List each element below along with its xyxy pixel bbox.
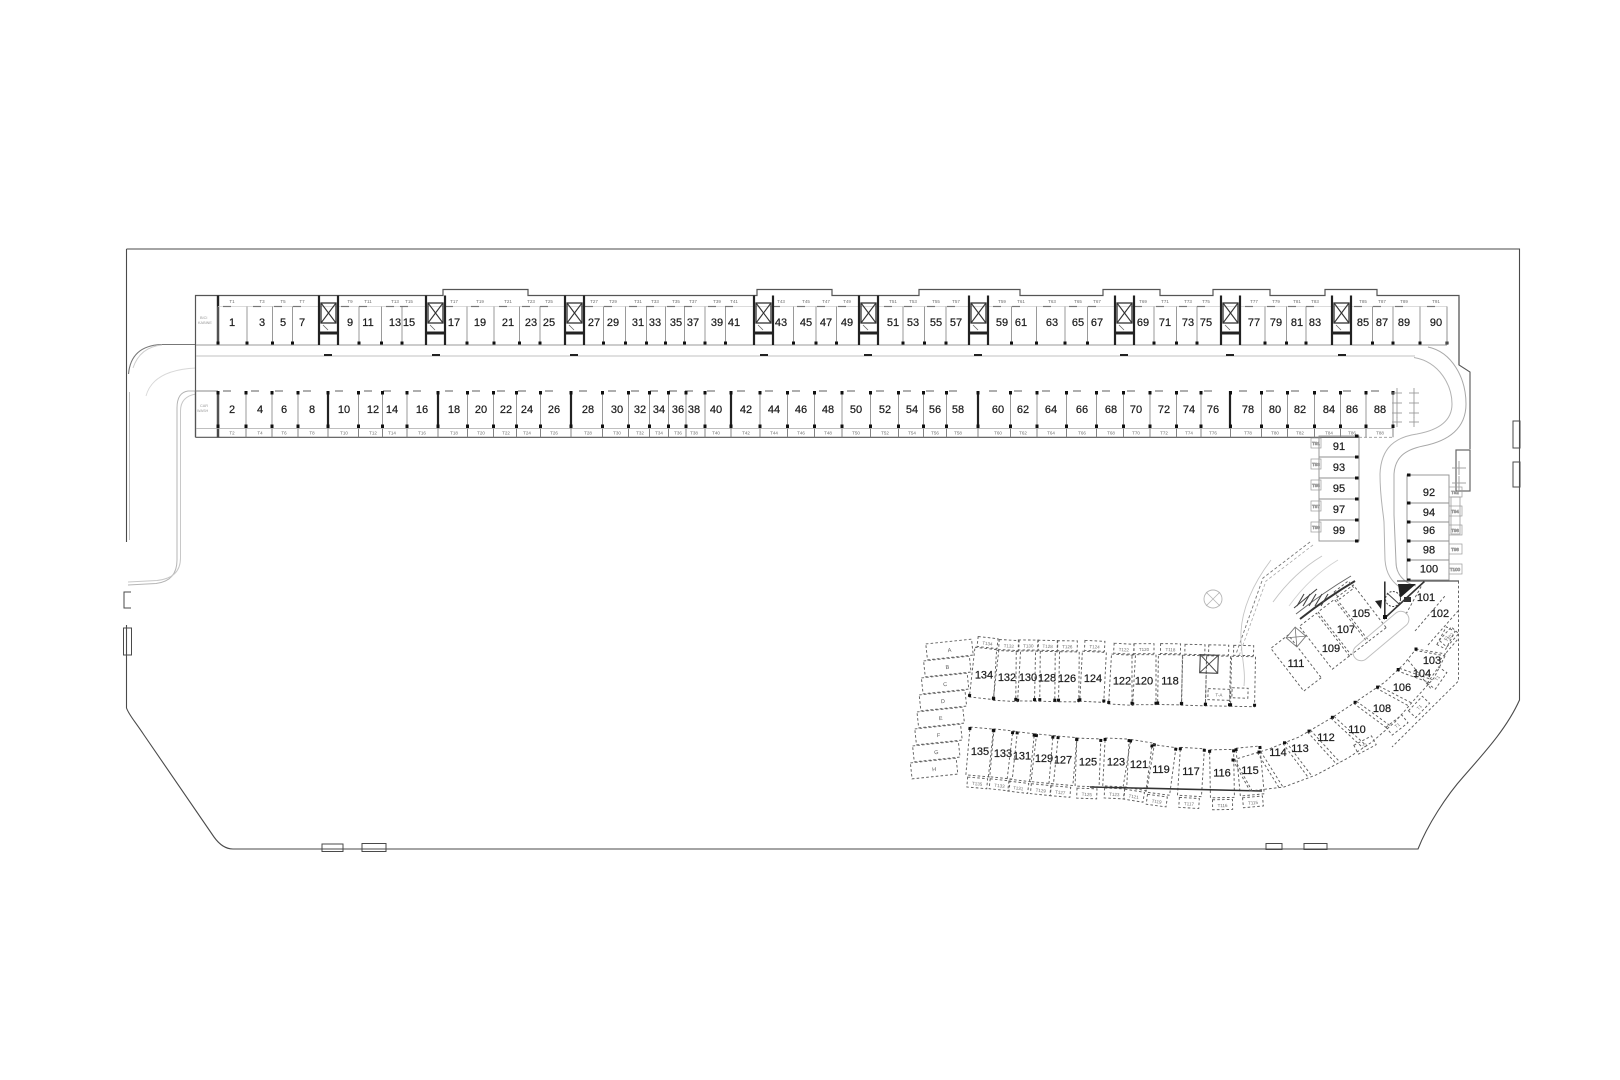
- svg-text:84: 84: [1323, 404, 1335, 416]
- svg-text:79: 79: [1270, 317, 1282, 329]
- svg-text:T47: T47: [822, 299, 830, 304]
- svg-text:85: 85: [1357, 317, 1369, 329]
- svg-text:83: 83: [1309, 317, 1321, 329]
- svg-text:T60: T60: [994, 431, 1002, 436]
- svg-text:131: 131: [1013, 751, 1031, 763]
- svg-text:38: 38: [688, 404, 700, 416]
- svg-text:T43: T43: [777, 299, 785, 304]
- svg-text:T123: T123: [1109, 792, 1120, 798]
- svg-text:9: 9: [347, 317, 353, 329]
- svg-text:T117: T117: [1184, 801, 1195, 807]
- svg-text:132: 132: [998, 672, 1016, 684]
- svg-text:101: 101: [1417, 592, 1435, 604]
- svg-text:34: 34: [653, 404, 665, 416]
- svg-text:68: 68: [1105, 404, 1117, 416]
- svg-text:58: 58: [952, 404, 964, 416]
- svg-text:23: 23: [525, 317, 537, 329]
- svg-text:15: 15: [403, 317, 415, 329]
- svg-text:T53: T53: [909, 299, 917, 304]
- svg-text:96: 96: [1423, 525, 1435, 537]
- svg-text:T33: T33: [651, 299, 659, 304]
- svg-text:126: 126: [1058, 673, 1076, 685]
- svg-text:T94: T94: [1451, 509, 1459, 514]
- svg-text:T70: T70: [1132, 431, 1140, 436]
- svg-text:T31: T31: [634, 299, 642, 304]
- svg-text:T64: T64: [1047, 431, 1055, 436]
- svg-text:94: 94: [1423, 507, 1435, 519]
- svg-text:T125: T125: [1082, 792, 1093, 797]
- svg-text:T76: T76: [1209, 431, 1217, 436]
- svg-text:78: 78: [1242, 404, 1254, 416]
- svg-text:124: 124: [1084, 673, 1102, 685]
- svg-text:T72: T72: [1160, 431, 1168, 436]
- svg-text:T61: T61: [1017, 299, 1025, 304]
- svg-text:51: 51: [887, 317, 899, 329]
- svg-text:118: 118: [1161, 676, 1179, 688]
- svg-text:45: 45: [800, 317, 812, 329]
- svg-text:T13: T13: [391, 299, 399, 304]
- svg-text:T78: T78: [1244, 431, 1252, 436]
- svg-text:T54: T54: [908, 431, 916, 436]
- svg-text:C: C: [943, 682, 948, 688]
- svg-text:T18: T18: [450, 431, 458, 436]
- svg-text:T93: T93: [1312, 462, 1320, 467]
- svg-text:87: 87: [1376, 317, 1388, 329]
- svg-text:T67: T67: [1093, 299, 1101, 304]
- svg-text:T48: T48: [824, 431, 832, 436]
- svg-text:31: 31: [632, 317, 644, 329]
- svg-text:22: 22: [500, 404, 512, 416]
- svg-text:60: 60: [992, 404, 1004, 416]
- svg-text:T79: T79: [1272, 299, 1280, 304]
- svg-text:128: 128: [1038, 672, 1056, 684]
- svg-text:T6: T6: [281, 431, 287, 436]
- svg-text:T96: T96: [1451, 528, 1459, 533]
- svg-text:T87: T87: [1378, 299, 1386, 304]
- svg-text:1: 1: [229, 317, 235, 329]
- svg-text:100: 100: [1420, 564, 1438, 576]
- svg-text:T3: T3: [259, 299, 265, 304]
- svg-text:T45: T45: [802, 299, 810, 304]
- svg-text:81: 81: [1291, 317, 1303, 329]
- svg-text:135: 135: [971, 746, 989, 758]
- svg-text:32: 32: [634, 404, 646, 416]
- svg-text:11: 11: [362, 317, 373, 329]
- svg-text:110: 110: [1348, 724, 1366, 736]
- svg-text:G: G: [934, 750, 939, 756]
- svg-text:62: 62: [1017, 404, 1029, 416]
- svg-text:75: 75: [1200, 317, 1212, 329]
- svg-text:T130: T130: [1023, 643, 1034, 648]
- svg-text:T32: T32: [636, 431, 644, 436]
- svg-text:T40: T40: [712, 431, 720, 436]
- svg-text:24: 24: [521, 404, 533, 416]
- svg-text:T68: T68: [1107, 431, 1115, 436]
- svg-text:T36: T36: [674, 431, 682, 436]
- svg-text:T27: T27: [590, 299, 598, 304]
- svg-text:80: 80: [1269, 404, 1281, 416]
- svg-text:T21: T21: [504, 299, 512, 304]
- svg-text:55: 55: [930, 317, 942, 329]
- svg-text:47: 47: [820, 317, 832, 329]
- svg-text:18: 18: [448, 404, 460, 416]
- svg-text:T52: T52: [881, 431, 889, 436]
- svg-text:T126: T126: [1062, 644, 1073, 649]
- svg-text:72: 72: [1158, 404, 1170, 416]
- svg-text:T42: T42: [742, 431, 750, 436]
- svg-text:26: 26: [548, 404, 560, 416]
- svg-text:T34: T34: [655, 431, 663, 436]
- svg-text:T65: T65: [1074, 299, 1082, 304]
- svg-text:T85: T85: [1359, 299, 1367, 304]
- svg-text:6: 6: [281, 404, 287, 416]
- svg-text:113: 113: [1291, 743, 1309, 755]
- svg-text:T118: T118: [1165, 647, 1175, 652]
- svg-text:109: 109: [1322, 643, 1340, 655]
- svg-text:53: 53: [907, 317, 919, 329]
- svg-text:T2: T2: [229, 431, 235, 436]
- svg-text:T25: T25: [545, 299, 553, 304]
- svg-text:T80: T80: [1271, 431, 1279, 436]
- svg-text:T92: T92: [1451, 490, 1459, 495]
- svg-text:95: 95: [1333, 483, 1345, 495]
- svg-text:T127: T127: [1055, 790, 1066, 796]
- svg-text:T9: T9: [347, 299, 353, 304]
- svg-text:127: 127: [1054, 755, 1072, 767]
- svg-text:T58: T58: [954, 431, 962, 436]
- svg-text:T7: T7: [299, 299, 305, 304]
- svg-text:WASH: WASH: [197, 409, 209, 413]
- svg-text:33: 33: [649, 317, 661, 329]
- svg-text:T1: T1: [229, 299, 235, 304]
- svg-text:104: 104: [1413, 668, 1431, 680]
- svg-text:105: 105: [1352, 608, 1370, 620]
- svg-text:107: 107: [1337, 624, 1355, 636]
- svg-text:48: 48: [822, 404, 834, 416]
- svg-text:106: 106: [1393, 682, 1411, 694]
- svg-text:103: 103: [1423, 655, 1441, 667]
- svg-text:27: 27: [588, 317, 600, 329]
- svg-text:T26: T26: [550, 431, 558, 436]
- svg-text:13: 13: [389, 317, 401, 329]
- svg-text:T132: T132: [1004, 643, 1015, 649]
- svg-text:T8: T8: [309, 431, 315, 436]
- svg-text:T20: T20: [477, 431, 485, 436]
- svg-text:122: 122: [1113, 676, 1131, 688]
- svg-text:14: 14: [386, 404, 398, 416]
- svg-text:20: 20: [475, 404, 487, 416]
- svg-text:70: 70: [1130, 404, 1142, 416]
- svg-text:T135: T135: [972, 781, 983, 787]
- svg-text:T89: T89: [1400, 299, 1408, 304]
- svg-text:19: 19: [474, 317, 486, 329]
- svg-text:61: 61: [1015, 317, 1027, 329]
- svg-text:T44: T44: [770, 431, 778, 436]
- svg-text:T124: T124: [1089, 644, 1100, 650]
- svg-text:37: 37: [687, 317, 699, 329]
- svg-text:54: 54: [906, 404, 918, 416]
- svg-text:T39: T39: [713, 299, 721, 304]
- svg-text:39: 39: [711, 317, 723, 329]
- svg-text:T55: T55: [932, 299, 940, 304]
- svg-text:89: 89: [1398, 317, 1410, 329]
- svg-text:43: 43: [775, 317, 787, 329]
- svg-text:92: 92: [1423, 487, 1435, 499]
- svg-text:T100: T100: [1450, 567, 1461, 572]
- svg-text:93: 93: [1333, 462, 1345, 474]
- svg-text:T22: T22: [502, 431, 510, 436]
- svg-text:64: 64: [1045, 404, 1057, 416]
- svg-text:12: 12: [367, 404, 379, 416]
- svg-text:T30: T30: [613, 431, 621, 436]
- svg-text:T99: T99: [1312, 525, 1320, 530]
- svg-text:108: 108: [1373, 703, 1391, 715]
- svg-text:T23: T23: [527, 299, 535, 304]
- svg-text:17: 17: [448, 317, 460, 329]
- svg-text:T38: T38: [690, 431, 698, 436]
- svg-text:BICI: BICI: [200, 316, 207, 320]
- svg-text:59: 59: [996, 317, 1008, 329]
- svg-text:T11: T11: [364, 299, 372, 304]
- svg-text:82: 82: [1294, 404, 1306, 416]
- svg-text:T5: T5: [280, 299, 286, 304]
- svg-text:T66: T66: [1078, 431, 1086, 436]
- svg-text:T82: T82: [1296, 431, 1304, 436]
- svg-text:76: 76: [1207, 404, 1219, 416]
- svg-text:T88: T88: [1376, 431, 1384, 436]
- svg-text:T35: T35: [672, 299, 680, 304]
- svg-text:40: 40: [710, 404, 722, 416]
- svg-text:63: 63: [1046, 317, 1058, 329]
- svg-text:T51: T51: [889, 299, 897, 304]
- svg-text:71: 71: [1159, 317, 1171, 329]
- svg-text:65: 65: [1072, 317, 1084, 329]
- svg-text:T63: T63: [1048, 299, 1056, 304]
- svg-text:T24: T24: [523, 431, 531, 436]
- svg-text:112: 112: [1317, 732, 1335, 744]
- svg-text:T49: T49: [843, 299, 851, 304]
- svg-text:T41: T41: [730, 299, 738, 304]
- svg-text:66: 66: [1076, 404, 1088, 416]
- svg-text:T91: T91: [1312, 441, 1320, 446]
- svg-text:T91: T91: [1432, 299, 1440, 304]
- svg-text:T128: T128: [1042, 644, 1053, 649]
- svg-text:T83: T83: [1311, 299, 1319, 304]
- svg-text:T77: T77: [1250, 299, 1258, 304]
- svg-text:T116: T116: [1218, 803, 1229, 808]
- svg-text:T14: T14: [388, 431, 396, 436]
- svg-text:44: 44: [768, 404, 780, 416]
- svg-text:88: 88: [1374, 404, 1386, 416]
- svg-text:102: 102: [1431, 608, 1449, 620]
- svg-text:10: 10: [338, 404, 350, 416]
- svg-text:116: 116: [1213, 768, 1231, 780]
- svg-text:67: 67: [1091, 317, 1103, 329]
- svg-text:99: 99: [1333, 525, 1345, 537]
- svg-text:115: 115: [1241, 765, 1259, 777]
- svg-text:T120: T120: [1139, 647, 1150, 652]
- svg-text:73: 73: [1182, 317, 1194, 329]
- svg-text:97: 97: [1333, 504, 1345, 516]
- svg-text:T37: T37: [689, 299, 697, 304]
- svg-text:36: 36: [672, 404, 684, 416]
- svg-text:T56: T56: [931, 431, 939, 436]
- svg-text:16: 16: [416, 404, 428, 416]
- svg-text:25: 25: [543, 317, 555, 329]
- svg-text:T16: T16: [418, 431, 426, 436]
- svg-text:T57: T57: [952, 299, 960, 304]
- svg-text:86: 86: [1346, 404, 1358, 416]
- svg-text:117: 117: [1182, 766, 1200, 778]
- svg-text:T4: T4: [257, 431, 263, 436]
- svg-text:30: 30: [611, 404, 623, 416]
- svg-text:T10: T10: [340, 431, 348, 436]
- svg-text:56: 56: [929, 404, 941, 416]
- svg-text:T62: T62: [1019, 431, 1027, 436]
- svg-text:D: D: [941, 699, 946, 705]
- svg-text:49: 49: [841, 317, 853, 329]
- svg-text:T15: T15: [405, 299, 413, 304]
- svg-text:T81: T81: [1293, 299, 1301, 304]
- svg-text:98: 98: [1423, 545, 1435, 557]
- svg-text:3: 3: [259, 317, 265, 329]
- svg-text:5: 5: [280, 317, 286, 329]
- svg-text:T12: T12: [369, 431, 377, 436]
- svg-text:T129: T129: [1035, 788, 1046, 794]
- svg-text:125: 125: [1079, 757, 1097, 769]
- svg-text:29: 29: [607, 317, 619, 329]
- svg-text:T-A: T-A: [1215, 692, 1222, 697]
- svg-text:T46: T46: [797, 431, 805, 436]
- svg-text:41: 41: [728, 317, 740, 329]
- svg-text:T115: T115: [1248, 800, 1259, 806]
- svg-text:120: 120: [1135, 676, 1153, 688]
- svg-text:123: 123: [1107, 757, 1125, 769]
- svg-text:114: 114: [1269, 747, 1287, 759]
- svg-text:CAR: CAR: [200, 404, 208, 408]
- svg-text:T98: T98: [1451, 547, 1459, 552]
- svg-text:T28: T28: [584, 431, 592, 436]
- svg-text:91: 91: [1333, 441, 1345, 453]
- svg-text:T97: T97: [1312, 504, 1320, 509]
- svg-text:50: 50: [850, 404, 862, 416]
- svg-text:111: 111: [1288, 658, 1305, 670]
- svg-text:T19: T19: [476, 299, 484, 304]
- svg-text:134: 134: [975, 669, 993, 681]
- svg-text:69: 69: [1137, 317, 1149, 329]
- svg-text:4: 4: [257, 404, 263, 416]
- svg-text:T50: T50: [852, 431, 860, 436]
- svg-text:77: 77: [1248, 317, 1260, 329]
- svg-text:119: 119: [1152, 764, 1170, 776]
- svg-text:21: 21: [502, 317, 514, 329]
- svg-text:74: 74: [1183, 404, 1195, 416]
- svg-text:T75: T75: [1202, 299, 1210, 304]
- svg-text:T122: T122: [1119, 647, 1130, 653]
- svg-text:7: 7: [299, 317, 305, 329]
- svg-text:121: 121: [1130, 759, 1148, 771]
- svg-text:90: 90: [1430, 317, 1442, 329]
- svg-text:57: 57: [950, 317, 962, 329]
- svg-text:42: 42: [740, 404, 752, 416]
- svg-text:T74: T74: [1185, 431, 1193, 436]
- svg-text:T69: T69: [1139, 299, 1147, 304]
- svg-text:28: 28: [582, 404, 594, 416]
- svg-text:35: 35: [670, 317, 682, 329]
- svg-text:8: 8: [309, 404, 315, 416]
- svg-text:T73: T73: [1184, 299, 1192, 304]
- svg-text:KABINE: KABINE: [198, 321, 212, 325]
- svg-text:T17: T17: [450, 299, 458, 304]
- svg-text:52: 52: [879, 404, 891, 416]
- svg-text:46: 46: [795, 404, 807, 416]
- svg-text:T29: T29: [609, 299, 617, 304]
- svg-text:2: 2: [229, 404, 235, 416]
- svg-text:T59: T59: [998, 299, 1006, 304]
- svg-text:T95: T95: [1312, 483, 1320, 488]
- svg-text:T71: T71: [1161, 299, 1169, 304]
- svg-text:H: H: [932, 767, 937, 773]
- svg-text:T84: T84: [1325, 431, 1333, 436]
